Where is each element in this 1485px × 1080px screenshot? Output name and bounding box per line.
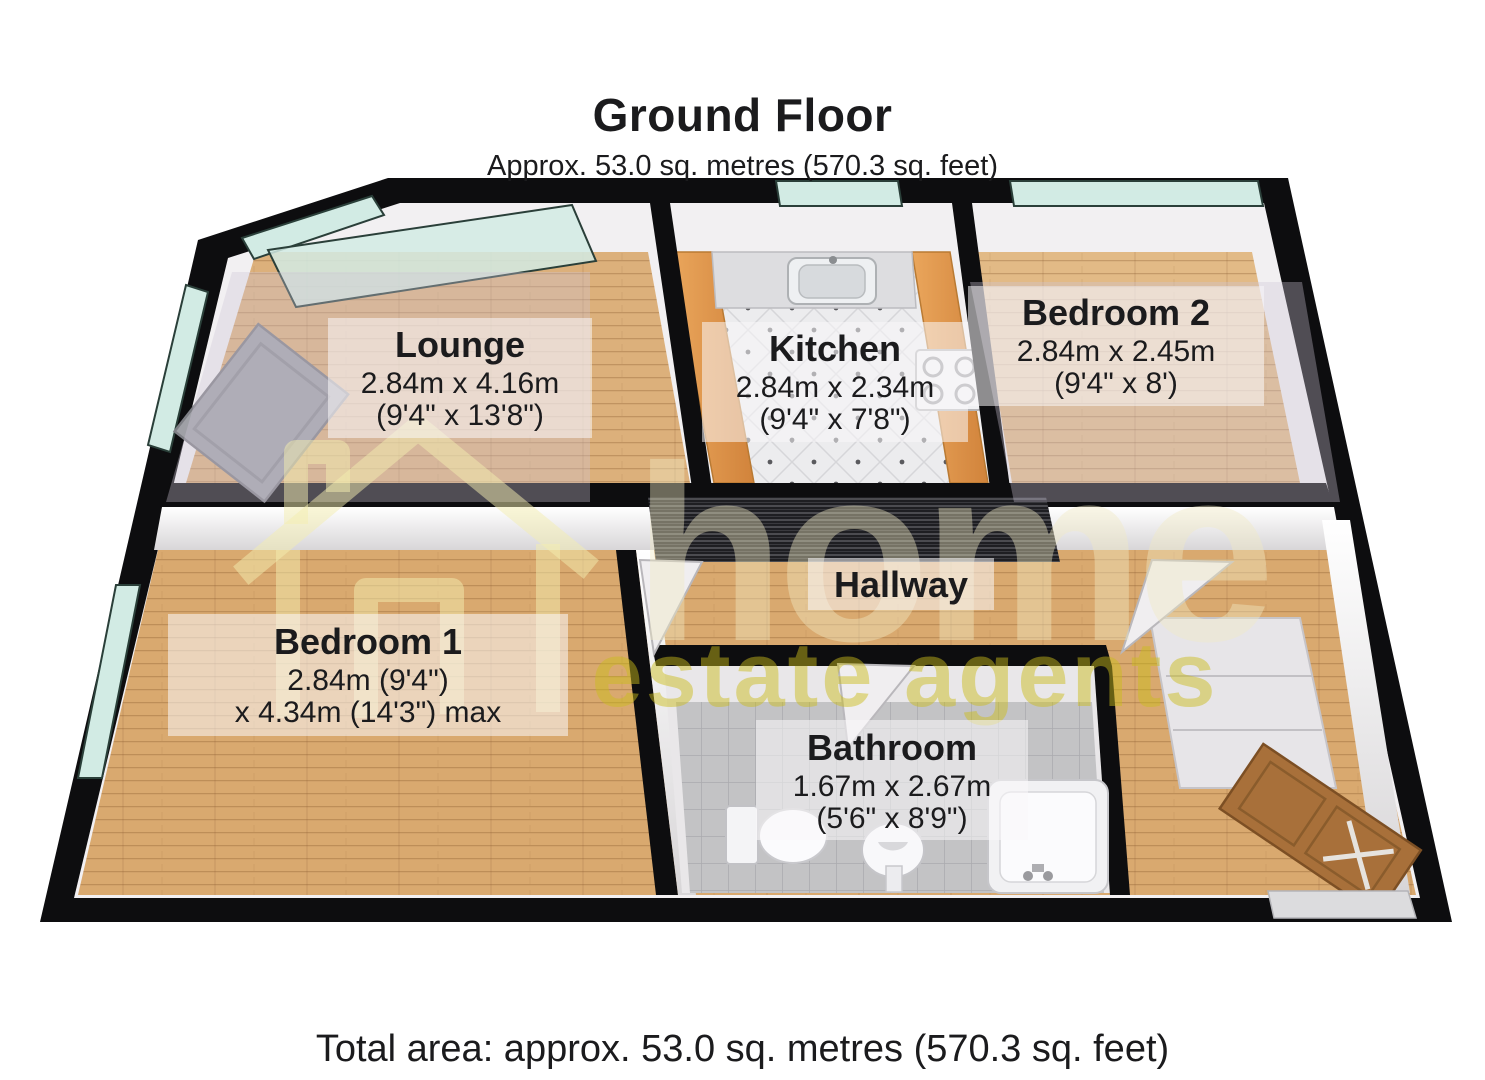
bedroom2-name: Bedroom 2	[1022, 292, 1210, 333]
room-label-kitchen: Kitchen 2.84m x 2.34m (9'4" x 7'8")	[702, 322, 968, 442]
lounge-imperial: (9'4" x 13'8")	[376, 399, 544, 432]
lounge-metric: 2.84m x 4.16m	[361, 367, 559, 400]
room-label-bathroom: Bathroom 1.67m x 2.67m (5'6" x 8'9")	[756, 720, 1028, 840]
floor-plan-page: home estate agents Lounge 2.84m x 4.16m …	[0, 0, 1485, 1080]
kitchen-name: Kitchen	[769, 328, 901, 369]
kitchen-metric: 2.84m x 2.34m	[736, 371, 934, 404]
bedroom1-metric: 2.84m (9'4")	[287, 664, 448, 697]
bedroom2-metric: 2.84m x 2.45m	[1017, 335, 1215, 368]
kitchen-window	[776, 181, 902, 206]
hallway-name: Hallway	[834, 564, 968, 605]
kitchen-imperial: (9'4" x 7'8")	[759, 403, 910, 436]
kitchen-sink-icon	[788, 256, 876, 304]
entrance-step	[1268, 891, 1416, 918]
bathroom-metric: 1.67m x 2.67m	[793, 770, 991, 803]
bathroom-name: Bathroom	[807, 727, 977, 768]
bedroom2-imperial: (9'4" x 8')	[1054, 367, 1178, 400]
page-subtitle: Approx. 53.0 sq. metres (570.3 sq. feet)	[0, 150, 1485, 183]
bathroom-imperial: (5'6" x 8'9")	[816, 802, 967, 835]
total-area-text: Total area: approx. 53.0 sq. metres (570…	[0, 1028, 1485, 1071]
room-label-bedroom2: Bedroom 2 2.84m x 2.45m (9'4" x 8')	[968, 286, 1264, 406]
bedroom1-imperial: x 4.34m (14'3") max	[235, 696, 501, 729]
bedroom2-window	[1010, 181, 1263, 206]
lounge-name: Lounge	[395, 324, 525, 365]
plan-header: Ground Floor Approx. 53.0 sq. metres (57…	[0, 88, 1485, 183]
room-label-hallway: Hallway	[808, 558, 994, 610]
room-label-lounge: Lounge 2.84m x 4.16m (9'4" x 13'8")	[328, 318, 592, 438]
watermark-tagline: estate agents	[591, 624, 1218, 726]
page-title: Ground Floor	[0, 88, 1485, 142]
room-label-bedroom1: Bedroom 1 2.84m (9'4") x 4.34m (14'3") m…	[168, 614, 568, 736]
bedroom1-name: Bedroom 1	[274, 621, 462, 662]
